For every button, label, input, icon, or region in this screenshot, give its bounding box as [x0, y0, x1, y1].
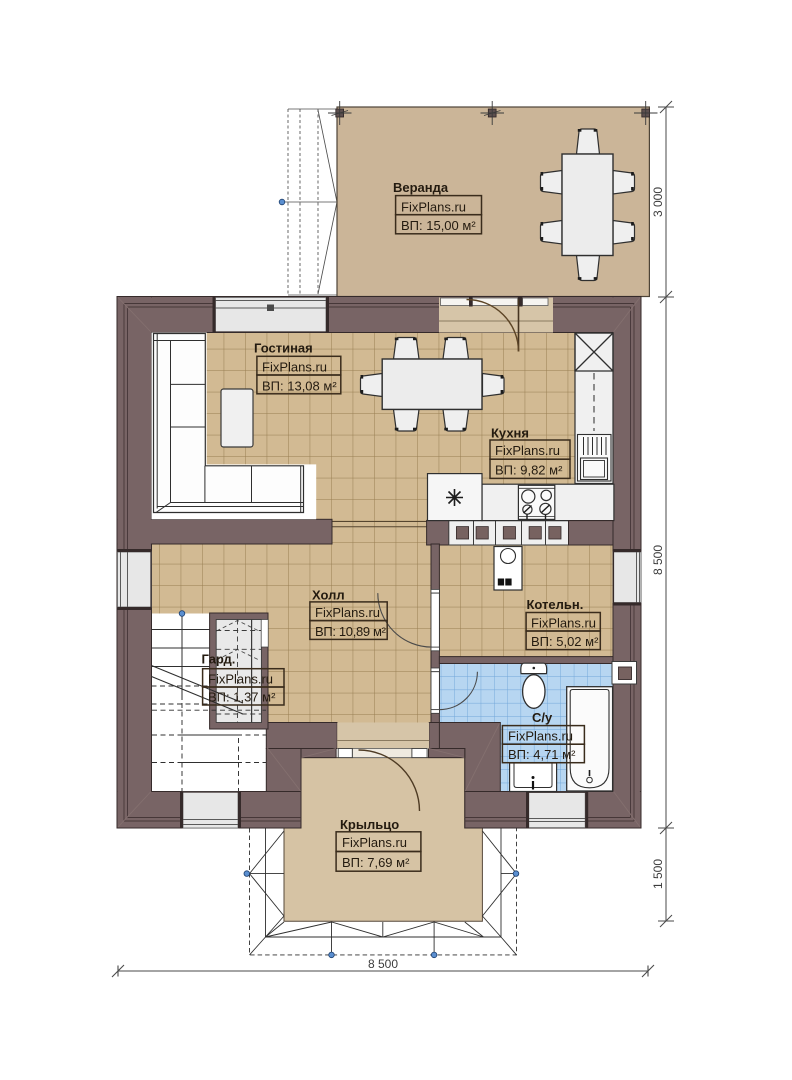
svg-text:FixPlans.ru: FixPlans.ru: [315, 605, 380, 620]
svg-text:Холл: Холл: [312, 588, 345, 603]
svg-text:ВП: 13,08 м²: ВП: 13,08 м²: [262, 378, 337, 393]
svg-text:Крыльцо: Крыльцо: [340, 817, 399, 832]
svg-text:FixPlans.ru: FixPlans.ru: [508, 729, 573, 744]
svg-text:FixPlans.ru: FixPlans.ru: [495, 443, 560, 458]
svg-text:С/у: С/у: [532, 710, 553, 725]
svg-text:ВП: 15,00 м²: ВП: 15,00 м²: [401, 218, 476, 233]
svg-text:FixPlans.ru: FixPlans.ru: [531, 615, 596, 630]
svg-text:ВП: 5,02 м²: ВП: 5,02 м²: [531, 634, 599, 649]
svg-text:Гард.: Гард.: [202, 652, 236, 667]
svg-text:ВП: 10,89 м²: ВП: 10,89 м²: [315, 624, 387, 639]
svg-text:ВП: 4,71 м²: ВП: 4,71 м²: [508, 747, 576, 762]
svg-text:Котельн.: Котельн.: [527, 597, 584, 612]
svg-text:FixPlans.ru: FixPlans.ru: [401, 199, 466, 214]
svg-text:1 500: 1 500: [651, 859, 665, 889]
svg-text:Веранда: Веранда: [393, 180, 449, 195]
svg-text:8 500: 8 500: [651, 545, 665, 575]
svg-text:ВП: 1,37 м²: ВП: 1,37 м²: [208, 689, 276, 704]
svg-text:Гостиная: Гостиная: [254, 341, 313, 356]
svg-text:FixPlans.ru: FixPlans.ru: [342, 835, 407, 850]
svg-text:ВП: 9,82 м²: ВП: 9,82 м²: [495, 462, 563, 477]
svg-text:FixPlans.ru: FixPlans.ru: [208, 671, 273, 686]
svg-text:Кухня: Кухня: [491, 426, 529, 441]
svg-text:ВП: 7,69 м²: ВП: 7,69 м²: [342, 855, 410, 870]
svg-text:8 500: 8 500: [368, 957, 398, 971]
svg-text:FixPlans.ru: FixPlans.ru: [262, 360, 327, 375]
svg-text:3 000: 3 000: [651, 187, 665, 217]
